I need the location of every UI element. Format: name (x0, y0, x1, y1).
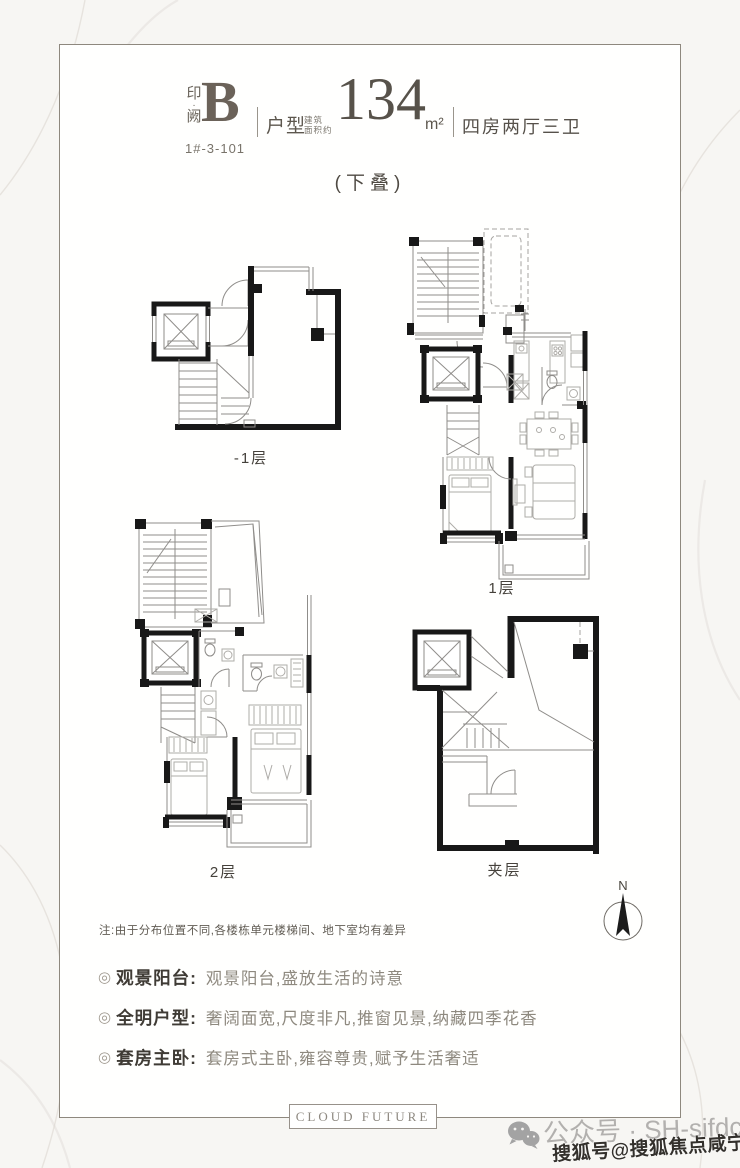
feature-list: ◎ 观景阳台: 观景阳台,盛放生活的诗意 ◎ 全明户型: 奢阔面宽,尺度非凡,推… (98, 957, 538, 1077)
area-value: 134 (336, 69, 426, 129)
elevator-icon (415, 632, 469, 688)
feature-text: 观景阳台,盛放生活的诗意 (206, 965, 404, 989)
header-divider-2 (453, 107, 454, 137)
feature-text: 奢阔面宽,尺度非凡,推窗见景,纳藏四季花香 (206, 1005, 538, 1029)
project-brand-box: CLOUD FUTURE (289, 1104, 437, 1129)
floorplan-second (131, 515, 316, 860)
hall-door (483, 363, 507, 387)
ring-bullet-icon: ◎ (98, 1008, 111, 1026)
feature-text: 套房式主卧,雍容尊贵,赋予生活奢适 (206, 1045, 480, 1069)
lower-partition-door (225, 356, 255, 427)
unit-letter: B (201, 73, 240, 131)
wechat-icon (506, 1120, 540, 1150)
floorplan-mezzanine (407, 616, 602, 861)
corridor-doors (208, 280, 248, 346)
balcony (499, 531, 589, 579)
feature-label: 全明户型: (116, 1005, 197, 1030)
area-prefix: 建筑 面积约 (304, 115, 333, 135)
inner-stairs-icon (161, 687, 195, 743)
right-wall (584, 331, 588, 539)
landing-door (442, 756, 517, 806)
window-lines (254, 267, 313, 291)
stack-type-subtitle: (下叠) (60, 168, 680, 195)
kitchen (503, 309, 585, 403)
area-prefix-line2: 面积约 (304, 125, 333, 135)
page-frame: 印 · 阙 B 1#-3-101 户型 建筑 面积约 134 m² 四房两厅三卫… (59, 44, 681, 1118)
project-brand: CLOUD FUTURE (296, 1109, 431, 1125)
column (311, 295, 335, 341)
feature-row: ◎ 全明户型: 奢阔面宽,尺度非凡,推窗见景,纳藏四季花香 (98, 997, 538, 1037)
ring-bullet-icon: ◎ (98, 1048, 111, 1066)
void-room (195, 521, 264, 623)
type-label: 户型 (266, 111, 306, 138)
bathroom (542, 367, 586, 409)
floorplan-first (407, 227, 597, 587)
feature-row: ◎ 套房主卧: 套房式主卧,雍容尊贵,赋予生活奢适 (98, 1037, 538, 1077)
elevator-icon (151, 304, 211, 359)
stairwell-icon (407, 237, 485, 339)
compass-icon: N (598, 877, 648, 949)
page: { "header": { "brand_top": "印", "brand_d… (0, 0, 740, 1168)
plan-label-second: 2层 (131, 861, 316, 882)
feature-label: 套房主卧: (116, 1045, 197, 1070)
living-room (513, 465, 575, 519)
dining-table (520, 412, 578, 456)
ring-bullet-icon: ◎ (98, 968, 111, 986)
stairs-icon (442, 690, 509, 748)
bathroom-1 (199, 627, 244, 735)
bedroom (440, 457, 511, 544)
feature-row: ◎ 观景阳台: 观景阳台,盛放生活的诗意 (98, 957, 538, 997)
feature-label: 观景阳台: (116, 965, 197, 990)
area-unit: m² (425, 116, 444, 134)
void-dashed-area (484, 229, 528, 343)
elevator-icon (140, 629, 201, 687)
rooms-description: 四房两厅三卫 (462, 113, 582, 139)
master-bedroom (249, 705, 301, 793)
plan-label-first: 1层 (407, 577, 597, 598)
floorplan-basement (151, 258, 351, 448)
stairs-icon (179, 359, 249, 425)
elevator-icon (420, 345, 482, 403)
plan-label-mezzanine: 夹层 (407, 859, 602, 880)
column (573, 622, 594, 659)
brand-char-bottom: 阙 (186, 108, 201, 125)
disclaimer-note: 注:由于分布位置不同,各楼栋单元楼梯间、地下室均有差异 (99, 922, 406, 938)
header-divider-1 (257, 107, 258, 137)
svg-text:N: N (618, 878, 627, 893)
unit-code: 1#-3-101 (185, 141, 245, 156)
bathroom-2 (243, 655, 303, 691)
plan-label-basement: -1层 (151, 447, 351, 468)
area-prefix-line1: 建筑 (304, 115, 333, 125)
